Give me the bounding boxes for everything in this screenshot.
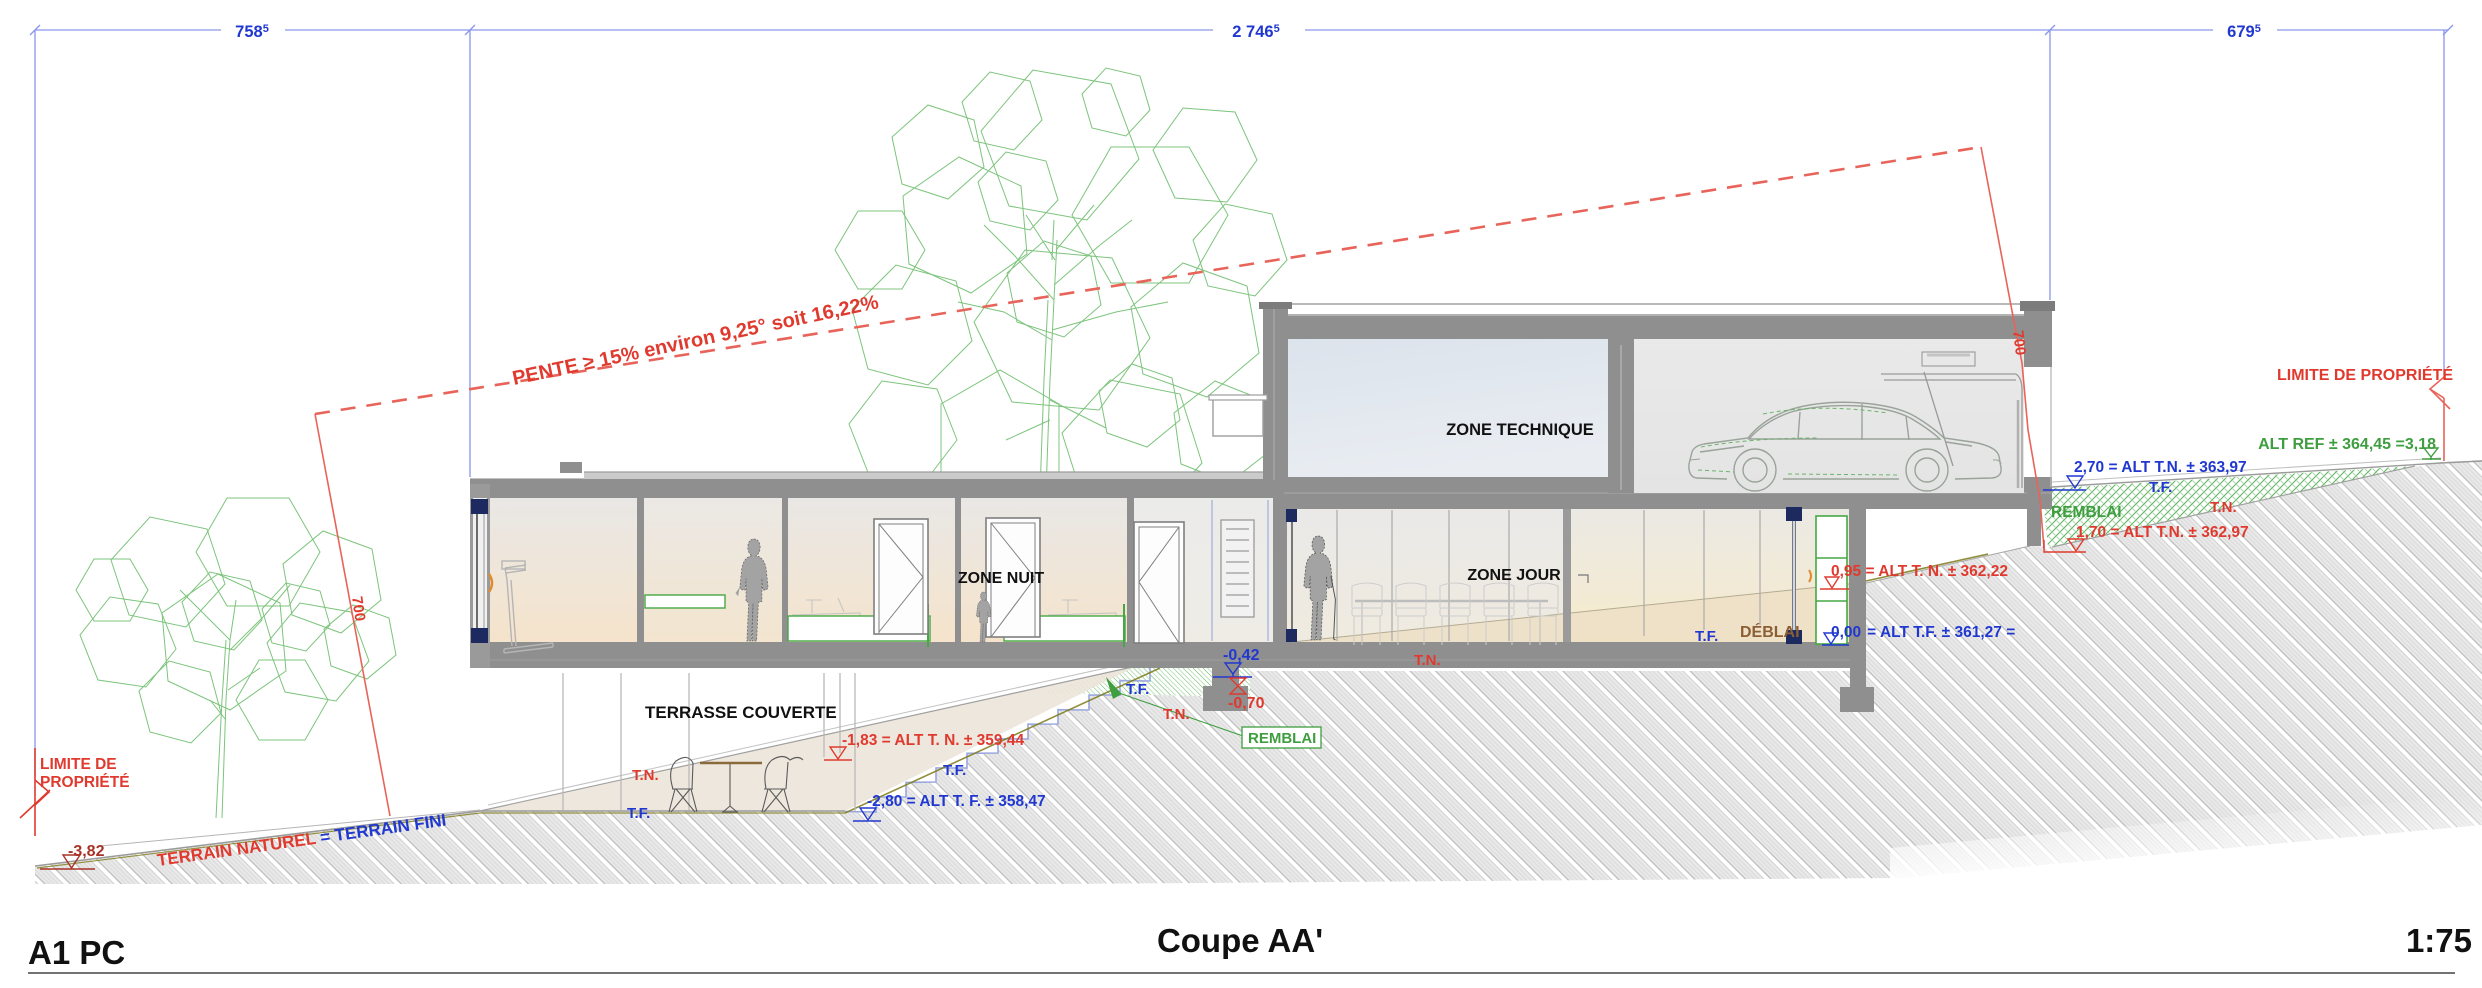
svg-text:0,95 = ALT T. N. ± 362,22: 0,95 = ALT T. N. ± 362,22 (1831, 563, 2008, 580)
svg-text:1:75: 1:75 (2406, 922, 2472, 959)
svg-text:PROPRIÉTÉ: PROPRIÉTÉ (40, 774, 130, 791)
svg-text:T.F.: T.F. (627, 805, 650, 822)
svg-text:1,70 = ALT T.N. ± 362,97: 1,70 = ALT T.N. ± 362,97 (2076, 524, 2249, 541)
svg-text:2,70 = ALT T.N. ± 363,97: 2,70 = ALT T.N. ± 363,97 (2074, 459, 2247, 476)
svg-text:T.F.: T.F. (2149, 479, 2172, 496)
svg-text:-0,70: -0,70 (1228, 695, 1265, 712)
svg-text:A1 PC: A1 PC (28, 934, 125, 971)
svg-text:REMBLAI: REMBLAI (1248, 730, 1316, 747)
svg-text:ZONE NUIT: ZONE NUIT (958, 570, 1044, 587)
svg-text:DÉBLAI: DÉBLAI (1740, 622, 1800, 641)
svg-text:T.N.: T.N. (632, 767, 659, 784)
svg-text:-1,83 = ALT T. N. ± 359,44: -1,83 = ALT T. N. ± 359,44 (842, 732, 1024, 749)
svg-text:0,00= ALT T.F. ± 361,27 =: 0,00= ALT T.F. ± 361,27 = (1831, 624, 2015, 641)
svg-text:ZONE JOUR: ZONE JOUR (1467, 567, 1561, 584)
svg-text:700: 700 (2009, 329, 2029, 356)
svg-text:TERRASSE COUVERTE: TERRASSE COUVERTE (645, 703, 837, 722)
svg-text:T.N.: T.N. (1414, 652, 1441, 669)
svg-text:T.F.: T.F. (943, 762, 966, 779)
svg-text:T.F.: T.F. (1126, 681, 1149, 698)
svg-text:ZONE TECHNIQUE: ZONE TECHNIQUE (1446, 421, 1594, 439)
svg-text:ALT REF ± 364,45 =3,18: ALT REF ± 364,45 =3,18 (2258, 436, 2436, 453)
svg-text:2 7465: 2 7465 (1232, 23, 1279, 41)
svg-text:-3,82: -3,82 (68, 843, 105, 860)
svg-text:-2,80 = ALT T. F. ± 358,47: -2,80 = ALT T. F. ± 358,47 (867, 793, 1046, 810)
svg-text:T.F.: T.F. (1695, 628, 1718, 645)
svg-text:T.N.: T.N. (1163, 706, 1190, 723)
svg-text:-0,42: -0,42 (1223, 647, 1260, 664)
svg-text:700: 700 (348, 595, 368, 622)
svg-text:Coupe AA': Coupe AA' (1157, 922, 1323, 959)
svg-text:REMBLAI: REMBLAI (2051, 504, 2122, 521)
svg-text:LIMITE DE: LIMITE DE (40, 756, 117, 773)
svg-text:LIMITE DE PROPRIÉTÉ: LIMITE DE PROPRIÉTÉ (2277, 365, 2453, 384)
svg-text:T.N.: T.N. (2210, 499, 2237, 516)
